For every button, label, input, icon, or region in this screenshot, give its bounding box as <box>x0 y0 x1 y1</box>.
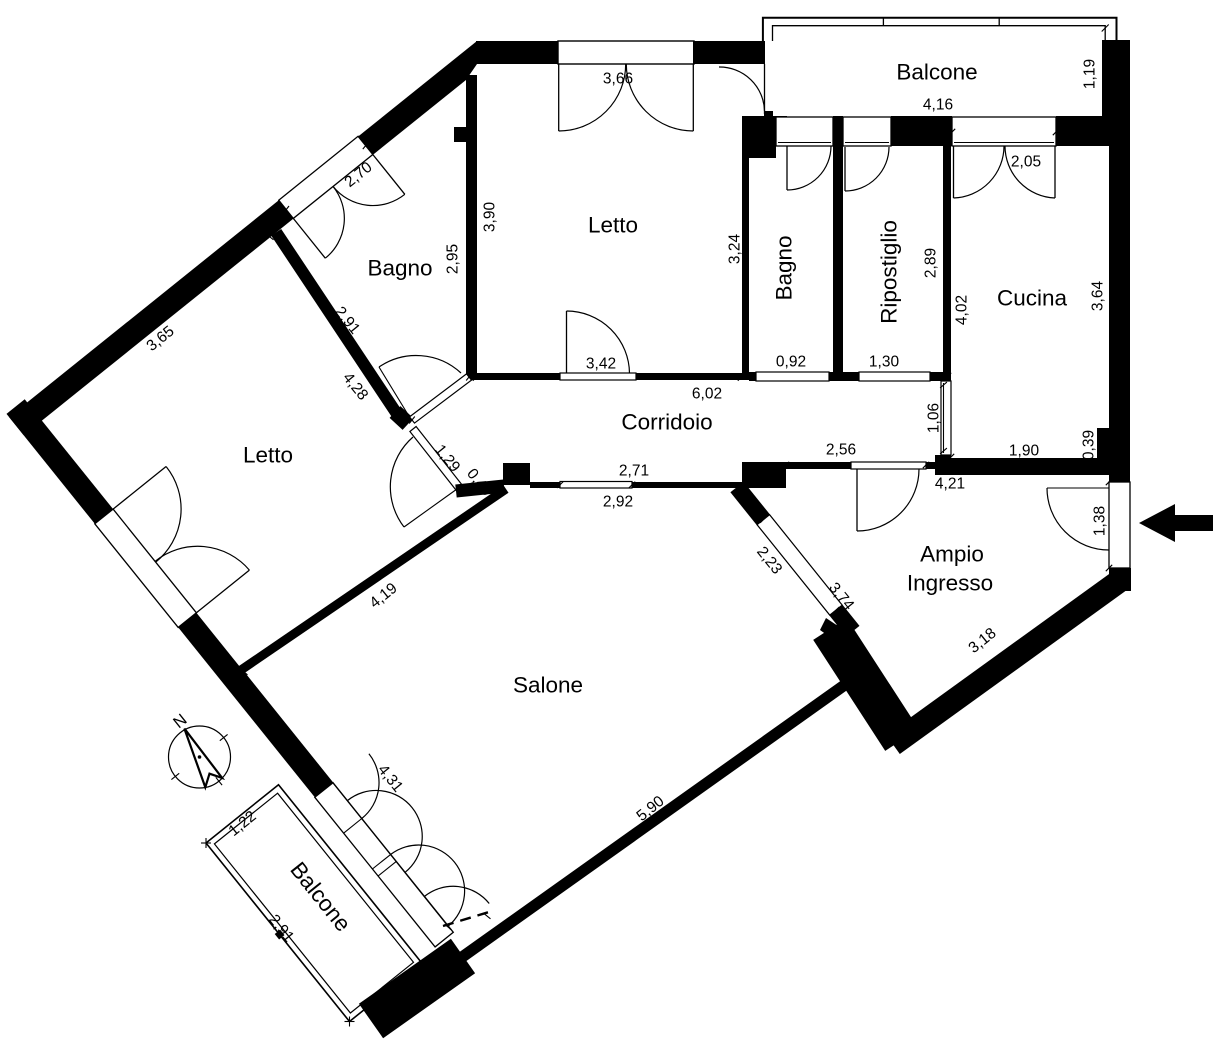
svg-text:Bagno: Bagno <box>367 256 432 281</box>
svg-text:4,02: 4,02 <box>954 295 971 325</box>
svg-text:4,21: 4,21 <box>935 476 965 493</box>
svg-text:0,92: 0,92 <box>776 354 806 371</box>
svg-text:3,42: 3,42 <box>586 356 616 373</box>
svg-text:2,71: 2,71 <box>619 463 649 480</box>
svg-text:2,56: 2,56 <box>826 442 856 459</box>
svg-text:Letto: Letto <box>588 213 638 238</box>
svg-text:1,38: 1,38 <box>1092 506 1109 536</box>
svg-text:3,66: 3,66 <box>603 71 633 88</box>
svg-text:2,92: 2,92 <box>603 494 633 511</box>
svg-text:Balcone: Balcone <box>285 857 355 936</box>
svg-text:Ingresso: Ingresso <box>907 571 993 596</box>
svg-text:1,30: 1,30 <box>869 354 900 371</box>
svg-text:Bagno: Bagno <box>772 235 797 300</box>
svg-text:Cucina: Cucina <box>997 286 1068 311</box>
svg-text:6,02: 6,02 <box>692 386 722 403</box>
svg-text:3,90: 3,90 <box>482 202 499 233</box>
svg-text:2,05: 2,05 <box>1011 154 1041 171</box>
svg-text:3,24: 3,24 <box>727 234 744 265</box>
svg-text:3,18: 3,18 <box>965 625 999 657</box>
svg-text:1,90: 1,90 <box>1009 443 1040 460</box>
svg-text:Corridoio: Corridoio <box>621 410 712 435</box>
svg-text:4,16: 4,16 <box>923 97 953 114</box>
svg-text:1,22: 1,22 <box>225 808 259 840</box>
svg-text:0,39: 0,39 <box>1081 430 1098 460</box>
svg-text:2,89: 2,89 <box>923 248 940 278</box>
svg-text:Salone: Salone <box>513 673 583 698</box>
svg-text:Ripostiglio: Ripostiglio <box>877 220 902 324</box>
svg-text:1,06: 1,06 <box>926 403 943 433</box>
svg-text:Balcone: Balcone <box>896 60 977 85</box>
svg-text:1,19: 1,19 <box>1082 59 1099 89</box>
svg-text:3,64: 3,64 <box>1090 281 1107 312</box>
svg-text:2,95: 2,95 <box>445 244 462 274</box>
svg-text:Letto: Letto <box>243 443 293 468</box>
svg-text:Ampio: Ampio <box>920 542 984 567</box>
